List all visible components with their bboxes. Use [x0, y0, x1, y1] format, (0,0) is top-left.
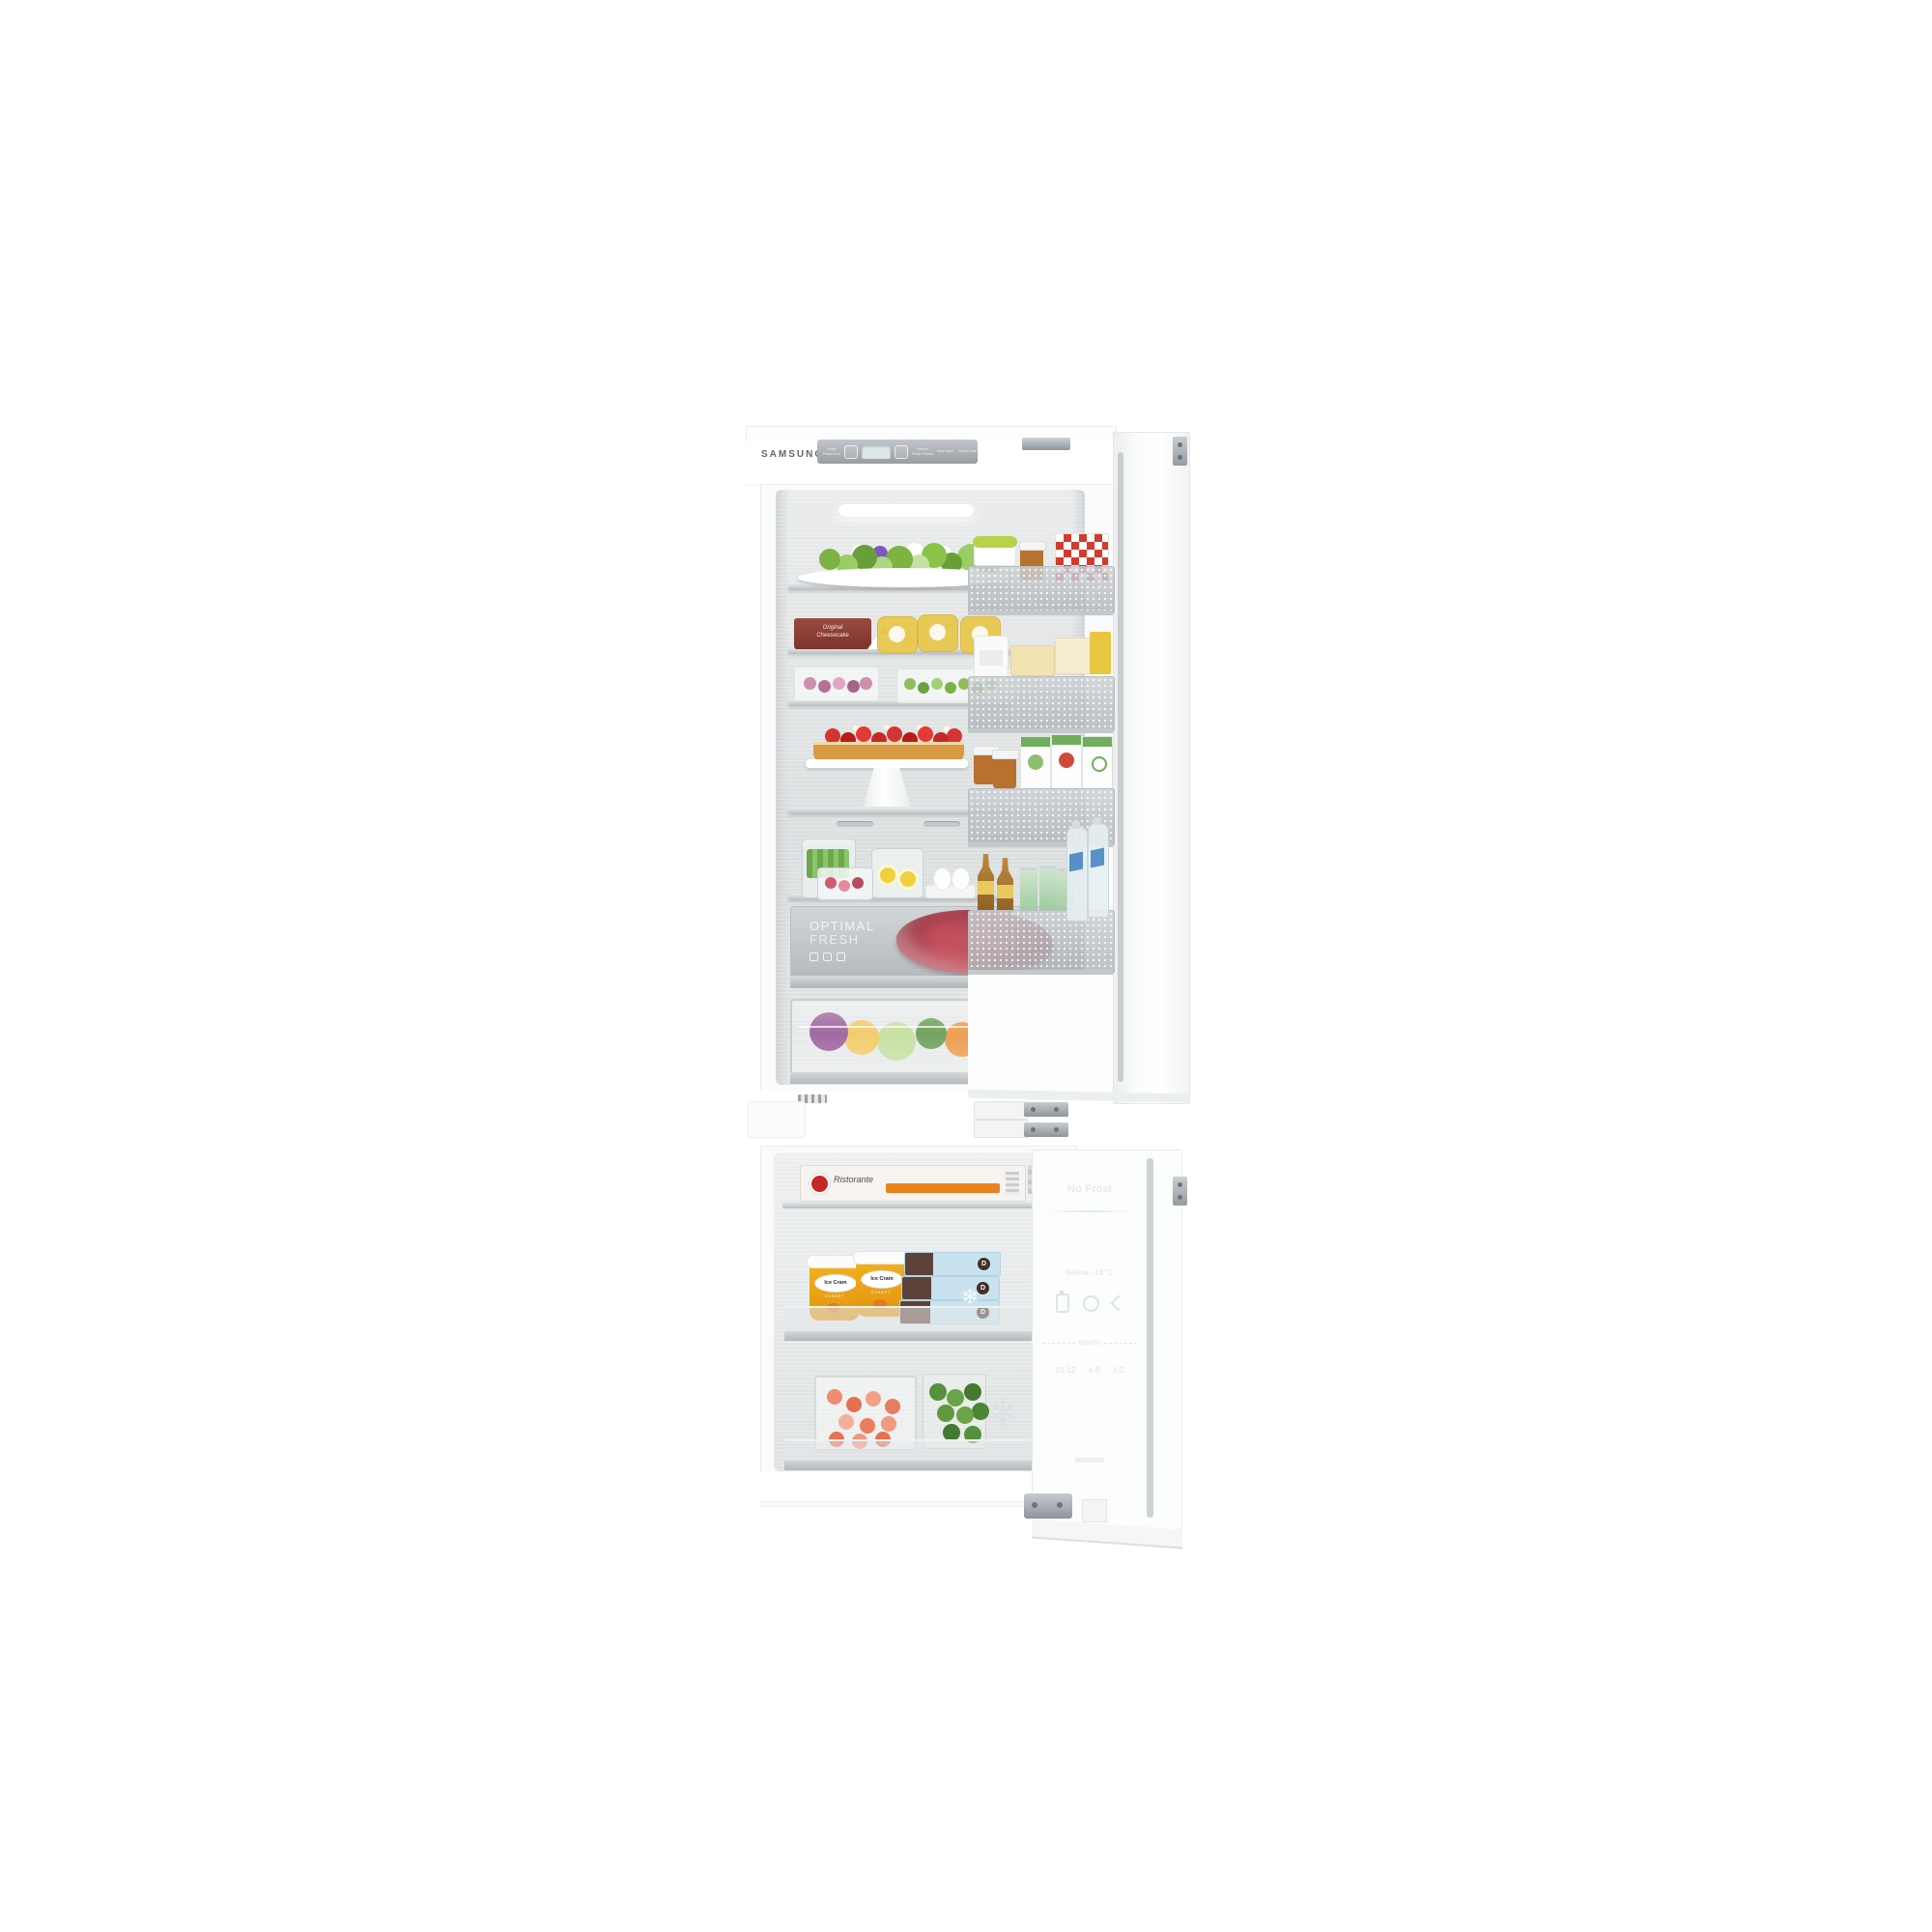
onions	[804, 677, 816, 690]
tart-crust	[813, 742, 964, 761]
air-vent	[923, 821, 960, 827]
egg-tray	[925, 885, 976, 898]
tub-lid	[853, 1251, 911, 1264]
control-panel: FridgePower Cool FreezerPower Freeze Doo…	[817, 440, 978, 464]
drink-can	[1039, 866, 1057, 913]
freezer-door-gasket	[1147, 1158, 1153, 1518]
pizza-box-band	[886, 1183, 1000, 1193]
door-bin-rail	[968, 611, 1113, 615]
samsung-logo: SAMSUNG	[761, 449, 824, 460]
cheese-wedge	[1010, 645, 1055, 676]
freezer-drawer-rail	[784, 1461, 1074, 1470]
door-bin-4	[968, 910, 1115, 974]
fridge-door-liner	[968, 974, 1113, 1094]
hinge-cover	[748, 1101, 806, 1138]
water-bottle	[1088, 823, 1109, 918]
cheesecake-box: Original Cheesecake	[794, 618, 871, 649]
freezer-door: No Frost Below -18°C Months 10-12 4-6 1-…	[1032, 1150, 1182, 1530]
circle-icon	[1083, 1295, 1099, 1312]
pizza-box-edge	[1006, 1172, 1019, 1195]
yogurt-jar	[974, 636, 1009, 680]
egg	[952, 867, 970, 891]
storage-heading-emboss: Below -18°C	[1033, 1268, 1147, 1277]
panel-door-alarm-label: Door Alarm	[937, 449, 954, 453]
radish-jar	[817, 867, 873, 900]
panel-fridge-label: FridgePower Cool	[823, 447, 840, 456]
product-photo-fridge-freezer: SAMSUNG FridgePower Cool FreezerPower Fr…	[0, 0, 1932, 1932]
air-vent	[837, 821, 873, 827]
door-hinge-arm	[1022, 438, 1070, 450]
optimal-fresh-label: OPTIMAL FRESH	[810, 920, 875, 948]
door-bin-1	[968, 566, 1115, 614]
pizza-box: Ristorante	[800, 1165, 1026, 1202]
fridge-door-gasket	[1118, 452, 1123, 1082]
optimal-fresh-mode-icons	[810, 952, 845, 961]
small-emboss-mark	[1075, 1458, 1104, 1463]
juice-carton	[1020, 736, 1051, 792]
water-bottle	[1066, 827, 1088, 922]
freezer-drawer-rail	[784, 1331, 1074, 1341]
cake-stand-plate	[806, 759, 968, 768]
juice-carton	[1051, 734, 1082, 790]
preserve-jar	[918, 614, 958, 652]
arrow-icon	[1110, 1295, 1126, 1312]
frozen-shrimp	[827, 1389, 842, 1405]
emboss-divider	[1046, 1210, 1133, 1212]
leveling-foot	[1082, 1499, 1107, 1522]
panel-freezer-label: FreezerPower Freeze	[912, 447, 933, 456]
fridge-temp-button	[844, 445, 858, 459]
middle-hinge	[1024, 1102, 1068, 1117]
pizza-logo	[810, 1174, 830, 1194]
preserve-jar	[877, 616, 918, 654]
door-bin-rail	[968, 970, 1113, 975]
brussels-sprouts	[904, 678, 916, 690]
snowflake-icon: ❄	[987, 1391, 1018, 1435]
lemon-slice	[877, 865, 898, 886]
lidded-container	[974, 541, 1016, 566]
top-hinge	[1173, 437, 1187, 466]
middle-hinge-cover	[974, 1120, 1028, 1138]
storage-icons-emboss	[1033, 1293, 1147, 1313]
freezer-shelf	[782, 1202, 1072, 1208]
door-bin-2	[968, 676, 1115, 732]
lemon-jar	[871, 848, 923, 898]
temperature-display	[862, 445, 891, 459]
ice-bar-box: D	[904, 1252, 1001, 1276]
bottom-hinge	[1024, 1493, 1072, 1519]
door-bin-rail	[968, 728, 1113, 733]
storage-durations-emboss: 10-12 4-6 1-2	[1033, 1365, 1147, 1375]
fridge-door-edge	[1113, 432, 1190, 1104]
no-frost-emboss: No Frost	[1033, 1183, 1147, 1195]
egg	[933, 867, 952, 891]
frozen-broccoli	[929, 1383, 947, 1401]
middle-hinge	[1024, 1122, 1068, 1137]
butter-box	[1090, 632, 1111, 674]
salad-greens	[819, 549, 840, 570]
juice-carton	[1082, 736, 1113, 792]
lemon-slice	[897, 868, 919, 890]
drink-can	[1020, 867, 1037, 915]
jam-jar	[993, 755, 1016, 788]
months-emboss: Months	[1042, 1340, 1137, 1347]
freezer-temp-button	[895, 445, 908, 459]
panel-control-lock-label: Control Lock	[957, 449, 977, 453]
bottle-icon	[1056, 1293, 1069, 1313]
middle-hinge-cover	[974, 1101, 1028, 1120]
freezer-top-hinge	[1173, 1177, 1187, 1206]
led-light	[838, 504, 974, 517]
ice-bar-box: D	[901, 1276, 1000, 1300]
